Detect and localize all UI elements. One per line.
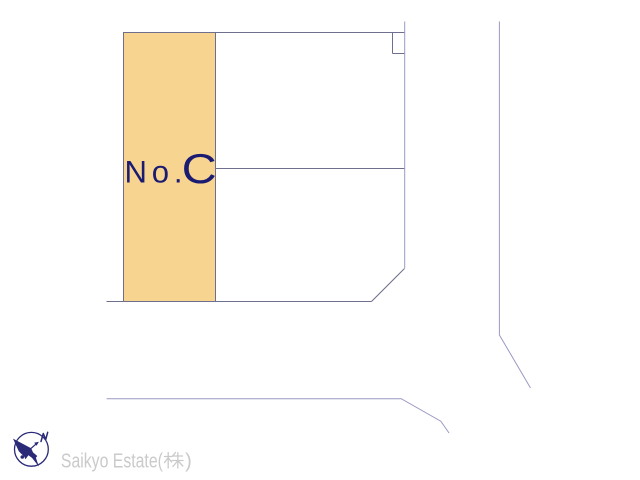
svg-text:C: C (182, 145, 217, 192)
svg-text:): ) (185, 450, 192, 472)
svg-text:No.: No. (125, 155, 183, 190)
svg-text:Saikyo Estate(: Saikyo Estate( (61, 450, 163, 472)
